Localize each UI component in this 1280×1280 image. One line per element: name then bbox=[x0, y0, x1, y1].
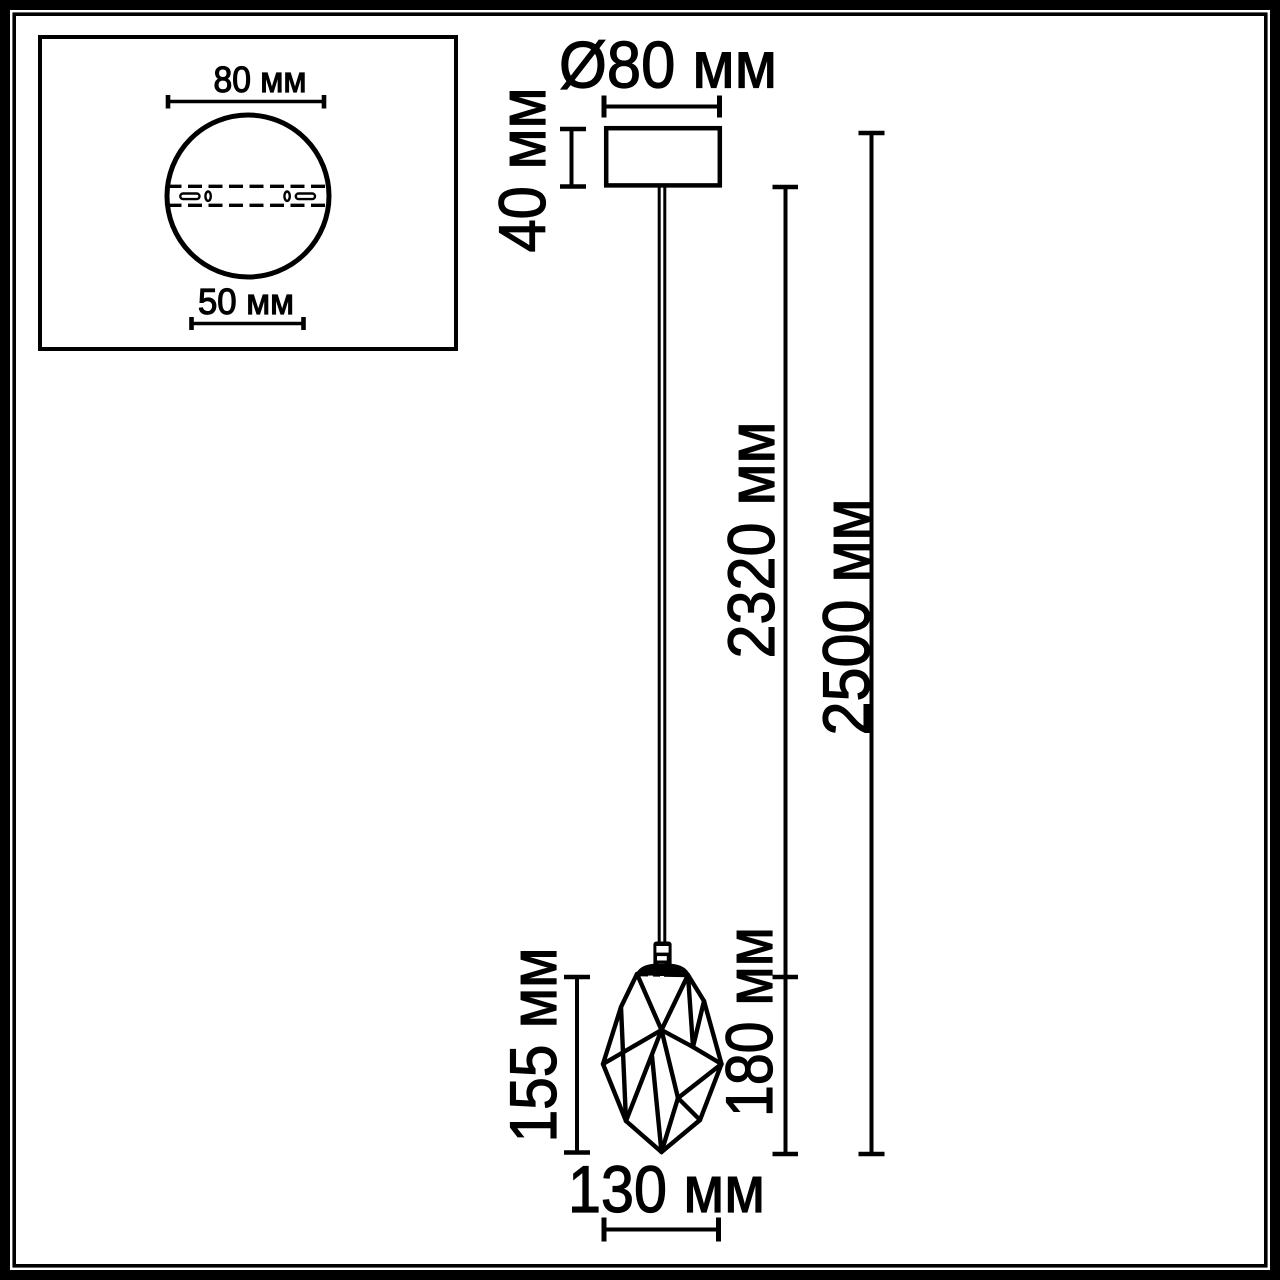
svg-text:80 мм: 80 мм bbox=[214, 59, 307, 100]
svg-text:50 мм: 50 мм bbox=[198, 281, 294, 322]
svg-text:130 мм: 130 мм bbox=[568, 1152, 765, 1226]
svg-text:180 мм: 180 мм bbox=[712, 927, 786, 1117]
svg-text:155 мм: 155 мм bbox=[496, 948, 570, 1143]
svg-text:40 мм: 40 мм bbox=[485, 88, 559, 253]
svg-text:2500 мм: 2500 мм bbox=[809, 499, 883, 736]
svg-text:2320 мм: 2320 мм bbox=[714, 422, 788, 659]
svg-text:Ø80 мм: Ø80 мм bbox=[559, 28, 777, 102]
